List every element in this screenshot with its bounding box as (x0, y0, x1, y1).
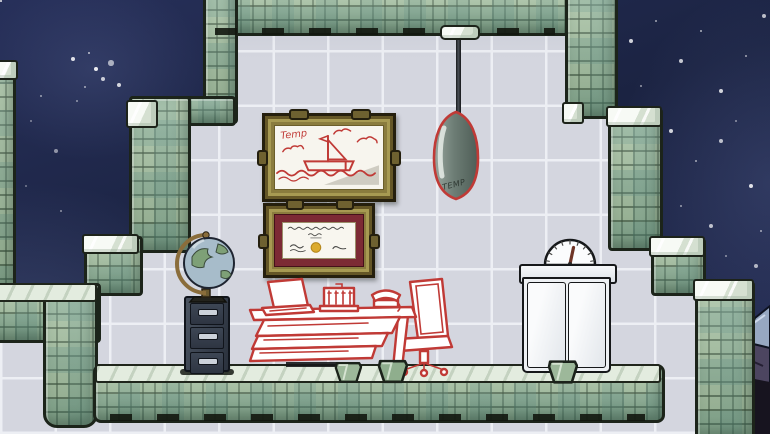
drawer-handle (198, 309, 218, 316)
painting-mat (274, 214, 364, 267)
cloud-sketch (334, 129, 351, 134)
left-edge-strip[interactable] (0, 62, 16, 295)
certificate-paper (282, 222, 356, 259)
ice-cap[interactable] (606, 106, 662, 127)
ice-cap[interactable] (693, 279, 754, 301)
signature-sketch (333, 247, 346, 249)
desk-globe[interactable] (168, 231, 242, 303)
floor-edge-rubble (110, 414, 645, 421)
ice-cap[interactable] (0, 60, 18, 80)
adding-machine-blueprint (320, 284, 358, 311)
ice-cap[interactable] (649, 236, 705, 257)
right-wall-mid[interactable] (608, 108, 663, 251)
cabinet-drawer[interactable] (190, 327, 224, 349)
drawer-handle (198, 333, 218, 340)
certificate-text-line (288, 227, 343, 229)
debris-chunk[interactable] (377, 358, 408, 385)
frame-ornament (336, 199, 354, 210)
frame-ornament (369, 234, 380, 249)
waves-sketch (279, 177, 308, 181)
debris-chunk[interactable] (547, 359, 578, 385)
ice-cap[interactable] (562, 102, 584, 124)
lamp-rod (456, 29, 461, 115)
landscape-painting[interactable]: Temp (262, 113, 396, 202)
ice-cap[interactable] (82, 234, 139, 254)
painting-canvas: Temp (274, 125, 384, 190)
star-field (0, 0, 2, 2)
frame-ornament (289, 109, 309, 120)
left-pillar-lower[interactable] (43, 285, 98, 428)
globe-continent (221, 271, 231, 279)
platform-top-cap[interactable] (0, 283, 97, 302)
right-wall-lower[interactable] (695, 281, 755, 434)
cabinet-drawer[interactable] (190, 303, 224, 325)
debris-chunk[interactable] (334, 360, 362, 385)
file-cabinet[interactable] (184, 296, 230, 372)
frame-ornament (257, 150, 268, 166)
boat-flag-sketch (320, 136, 328, 142)
signature-sketch (290, 245, 303, 248)
boat-hull-sketch (304, 161, 353, 170)
certificate-painting[interactable] (263, 203, 375, 278)
ice-cap[interactable] (126, 100, 158, 128)
fridge-door-right[interactable] (568, 282, 607, 368)
frame-ornament (286, 199, 304, 210)
cloud-sketch (283, 146, 304, 152)
desk-shadow (286, 362, 338, 367)
fridge-door-left[interactable] (527, 282, 566, 368)
telephone-blueprint (372, 291, 400, 312)
pendant-lamp[interactable]: TEMP (430, 108, 482, 204)
laptop-blueprint (262, 279, 314, 315)
lamp-ceiling-mount (440, 25, 480, 40)
frame-ornament (351, 109, 371, 120)
ceiling-edge-rubble (215, 28, 555, 35)
frame-ornament (390, 150, 401, 166)
boat-sail-sketch (328, 140, 346, 160)
frame-ornament (258, 234, 269, 249)
game-viewport: TEMP Temp (0, 0, 770, 434)
gold-seal (311, 243, 321, 253)
signature-sketch (290, 250, 305, 252)
cabinet-drawer[interactable] (190, 352, 224, 374)
certificate-text-line (309, 234, 322, 236)
cloud-sketch (357, 137, 377, 143)
drawer-handle (198, 358, 218, 365)
painting-temp-label: Temp (280, 128, 308, 142)
